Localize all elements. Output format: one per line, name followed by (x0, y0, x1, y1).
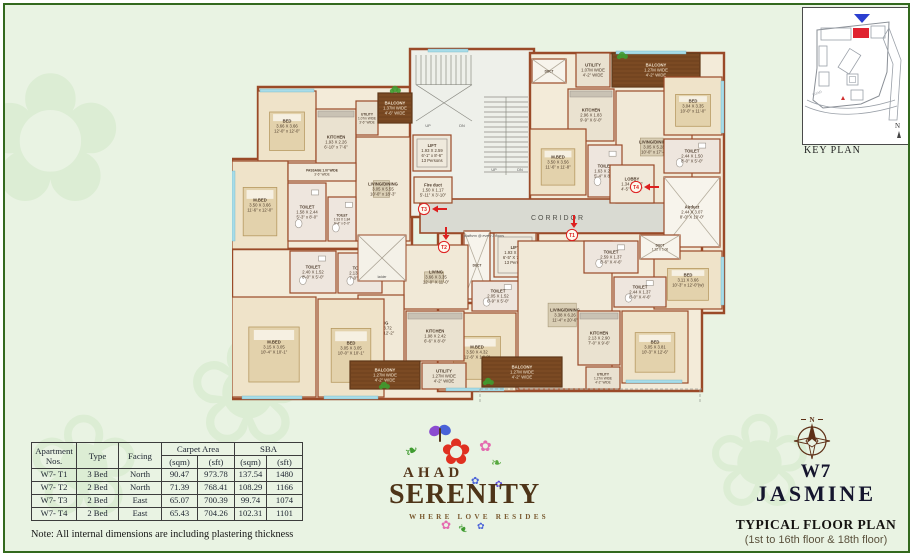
svg-text:12'-0" X 11'-0": 12'-0" X 11'-0" (423, 280, 450, 285)
toilet-t2-a: TOILET2.40 X 1.528'-0" X 5'-0" (290, 251, 336, 293)
bed-t4-a: BED3.04 X 3.3510'-0" x 11'-0" (664, 77, 722, 135)
platform-note: platform @ every 3 floors (463, 234, 504, 238)
window-sill (626, 380, 682, 383)
table-cell: 768.41 (198, 482, 235, 495)
toilet-core: TOILET2.05 X 1.526'-9" X 5'-0" (472, 281, 524, 311)
svg-text:1.22 X 1.06: 1.22 X 1.06 (652, 247, 669, 251)
plan-subtitle: (1st to 16th floor & 18th floor) (721, 534, 910, 546)
table-row: W7- T32 BedEast65.07700.3999.741074 (32, 494, 303, 507)
col-sba-sqm: (sqm) (235, 456, 267, 469)
north-arrow-icon (897, 131, 901, 138)
svg-text:DUCT: DUCT (545, 70, 554, 74)
svg-text:10'-3" x 12'-0"(w): 10'-3" x 12'-0"(w) (672, 283, 704, 288)
svg-text:10'-4" X 10'-1": 10'-4" X 10'-1" (261, 350, 288, 355)
flower-blue-icon: ✿ (477, 523, 485, 532)
plastering-note: Note: All internal dimensions are includ… (31, 529, 293, 540)
table-cell: 65.07 (162, 494, 198, 507)
floral-watermark: ✿ (3, 35, 126, 244)
svg-text:T1: T1 (569, 233, 575, 239)
corridor-label: CORRIDOR (531, 215, 585, 222)
table-cell: 1101 (267, 507, 303, 520)
utility-t4: UTILITY1.07M WIDE4'-2" WIDE (576, 53, 610, 87)
logo-tagline: WHERE LOVE RESIDES (409, 513, 549, 521)
col-type: Type (77, 443, 119, 469)
col-sba: SBA (235, 443, 303, 456)
plan-title-block: TYPICAL FLOOR PLAN (1st to 16th floor & … (721, 517, 910, 546)
svg-text:11'-6" x 12'-0": 11'-6" x 12'-0" (247, 208, 273, 213)
table-cell: 1480 (267, 469, 303, 482)
svg-text:T4: T4 (633, 185, 639, 191)
tower-title: W7 JASMINE (731, 461, 901, 507)
window-sill (428, 49, 468, 52)
passage-t3: PASSAGE 1.07 WIDE3'-6" WIDE (288, 163, 356, 181)
utility-t1: UTILITY1.27m WIDE4'-2" WIDE (586, 367, 620, 389)
mbed-t4: M.BED3.50 X 3.5611'-6" x 11'-8" (530, 129, 586, 195)
table-row: W7- T42 BedEast65.43704.26102.311101 (32, 507, 303, 520)
table-cell: W7- T4 (32, 507, 77, 520)
svg-text:6'-9" X 5'-0": 6'-9" X 5'-0" (487, 299, 509, 304)
dn-label-2: DN (517, 168, 523, 172)
tower-name: JASMINE (731, 481, 901, 507)
plan-title: TYPICAL FLOOR PLAN (721, 517, 910, 533)
mbed-t2: M.BED3.15 X 3.0510'-4" X 10'-1" (232, 297, 316, 397)
toilet-t1-b: TOILET2.44 X 1.378'-0" X 4'-6" (614, 277, 666, 307)
up-label-1: UP (425, 124, 431, 128)
lift-1: LIFT1.93 X 2.596'-1" x 8'-6"13 Persons (413, 135, 451, 171)
window-sill (324, 396, 378, 399)
window-sill (446, 388, 504, 391)
ahad-serenity-logo: ✿ ✿ ❧ ❧ ✿ ✿ ✿ ❧ ✿ AHAD SERENITY WHERE LO… (383, 421, 583, 553)
svg-text:10'-0" X 10'-1": 10'-0" X 10'-1" (338, 351, 365, 356)
table-cell: W7- T2 (32, 482, 77, 495)
table-cell: East (119, 507, 162, 520)
col-facing: Facing (119, 443, 162, 469)
table-cell: 108.29 (235, 482, 267, 495)
table-cell: 1166 (267, 482, 303, 495)
svg-text:10'-0" x 11'-0": 10'-0" x 11'-0" (680, 109, 706, 114)
svg-text:5'-11" X 3'-10": 5'-11" X 3'-10" (420, 193, 447, 198)
leaf-sprig-icon: ❧ (454, 521, 471, 538)
col-carpet-sqm: (sqm) (162, 456, 198, 469)
table-cell: 704.26 (198, 507, 235, 520)
table-cell: 2 Bed (77, 494, 119, 507)
ladder-label: ladder (378, 275, 388, 279)
logo-serenity: SERENITY (389, 479, 540, 511)
col-carpet-area: Carpet Area (162, 443, 235, 456)
table-cell: 3 Bed (77, 469, 119, 482)
svg-text:8'-0" X 10'-0": 8'-0" X 10'-0" (680, 215, 705, 220)
highlighted-tower (853, 28, 869, 38)
col-sba-sft: (sft) (267, 456, 303, 469)
svg-text:4'-2" WIDE: 4'-2" WIDE (375, 378, 396, 383)
toilet-t1-a: TOILET2.59 X 1.378'-6" X 4'-6" (584, 241, 638, 273)
svg-text:T2: T2 (441, 245, 447, 251)
svg-text:4'-2" WIDE: 4'-2" WIDE (434, 379, 455, 384)
svg-text:11'-4" x 20'-6": 11'-4" x 20'-6" (552, 318, 578, 323)
compass-icon: N (784, 413, 840, 463)
duct-t1: DUCT1.22 X 1.06 (640, 235, 680, 259)
window-sill (721, 257, 724, 305)
north-label: N (895, 122, 900, 130)
table-cell: W7- T3 (32, 494, 77, 507)
up-label-2: UP (491, 168, 497, 172)
table-cell: 2 Bed (77, 482, 119, 495)
window-sill (232, 171, 235, 241)
table-cell: 65.43 (162, 507, 198, 520)
table-cell: 1074 (267, 494, 303, 507)
kitchen-t2: KITCHEN1.98 X 2.426'-6" X 8'-0" (406, 311, 464, 361)
bed-t3: BED3.66 X 3.6612'-0" x 12'-0" (258, 91, 316, 161)
area-table: Apartment Nos. Type Facing Carpet Area S… (31, 442, 303, 521)
road-label: ROAD (812, 89, 823, 97)
fire-duct: Fire duct1.50 X 1.175'-11" X 3'-10" (414, 177, 452, 203)
table-cell: 99.74 (235, 494, 267, 507)
key-plan-title: KEY PLAN (804, 145, 861, 156)
table-cell: 102.31 (235, 507, 267, 520)
window-sill (242, 396, 302, 399)
key-plan-map: ROAD N (803, 8, 909, 144)
floor-plan: CORRIDORBED3.66 X 3.6612'-0" x 12'-0"M.B… (232, 45, 728, 417)
svg-text:12'-0" x 12'-0": 12'-0" x 12'-0" (274, 129, 300, 134)
utility-t2: UTILITY1.27M WIDE4'-2" WIDE (422, 363, 466, 389)
table-row: W7- T13 BedNorth90.47973.78137.541480 (32, 469, 303, 482)
svg-text:4'-2" WIDE: 4'-2" WIDE (583, 73, 604, 78)
toilet-t3-b: TOILET1.93 X 1.846'-4" x 6'-0" (328, 197, 356, 241)
table-cell: 71.39 (162, 482, 198, 495)
svg-text:13 Persons: 13 Persons (421, 158, 442, 163)
svg-text:6'-10" x 7'-6": 6'-10" x 7'-6" (324, 145, 348, 150)
table-cell: North (119, 469, 162, 482)
brochure-page: ✿ ❀ ✿ ❀ ❀ CORRIDORBED3.66 X 3.6612'-0" x… (0, 0, 913, 556)
key-plan: ROAD N KEY PLAN (802, 7, 910, 157)
svg-text:8'-0" X 5'-0": 8'-0" X 5'-0" (302, 275, 324, 280)
location-marker (854, 14, 870, 23)
svg-text:8'-6" X 4'-6": 8'-6" X 4'-6" (600, 260, 622, 265)
table-cell: 2 Bed (77, 507, 119, 520)
utility-t3: UTILITY1.07m WIDE3'-6" WIDE (356, 101, 378, 135)
balcony-t3: BALCONY1.37M WIDE4'-6" WIDE (378, 93, 412, 123)
bed-t1: BED3.05 X 3.8110'-3" X 12'-6" (622, 311, 688, 383)
living-t2: LIVING3.66 X 3.3512'-0" X 11'-0" (404, 245, 468, 309)
col-carpet-sft: (sft) (198, 456, 235, 469)
mbed-t3: M.BED3.50 X 3.6611'-6" x 12'-0" (232, 161, 288, 249)
table-cell: W7- T1 (32, 469, 77, 482)
svg-text:N: N (809, 416, 814, 424)
balcony-t1: BALCONY1.27M WIDE4'-2" WIDE (482, 357, 562, 387)
svg-text:7'-0" X 9'-6": 7'-0" X 9'-6" (588, 341, 610, 346)
window-sill (616, 51, 686, 54)
table-cell: North (119, 482, 162, 495)
svg-text:9'-9" X 6'-0": 9'-9" X 6'-0" (580, 118, 602, 123)
duct-t4-top: DUCT (532, 59, 566, 83)
svg-text:T3: T3 (421, 207, 427, 213)
svg-text:11'-6" x 11'-8": 11'-6" x 11'-8" (545, 165, 571, 170)
page-canvas: ✿ ❀ ✿ ❀ ❀ CORRIDORBED3.66 X 3.6612'-0" x… (3, 3, 910, 553)
toilet-t4-b: TOILET2.44 X 1.508'-0" X 5'-0" (664, 139, 720, 173)
svg-text:3'-6" WIDE: 3'-6" WIDE (359, 120, 375, 124)
svg-text:3'-6" WIDE: 3'-6" WIDE (314, 172, 330, 176)
window-sill (260, 89, 314, 92)
col-apartment: Apartment Nos. (32, 443, 77, 469)
table-row: W7- T22 BedNorth71.39768.41108.291166 (32, 482, 303, 495)
tower-code: W7 (731, 461, 901, 483)
svg-text:4'-6" WIDE: 4'-6" WIDE (385, 111, 406, 116)
toilet-t3-a: TOILET1.58 X 2.445'-3" x 8'-0" (288, 183, 326, 241)
dn-label-1: DN (459, 124, 465, 128)
svg-text:6'-4" x 6'-0": 6'-4" x 6'-0" (334, 221, 350, 225)
living-dining-t3: LIVING/DINING3.05 X 5.5510'-0" x 18'-3" (356, 137, 410, 241)
svg-text:4'-2" WIDE: 4'-2" WIDE (595, 380, 611, 384)
table-cell: 973.78 (198, 469, 235, 482)
svg-text:4'-2" WIDE: 4'-2" WIDE (512, 375, 533, 380)
leaf-sprig-icon: ❧ (402, 441, 422, 462)
table-cell: 137.54 (235, 469, 267, 482)
svg-text:10'-0" x 18'-3": 10'-0" x 18'-3" (370, 192, 396, 197)
svg-text:5'-3" x 8'-0": 5'-3" x 8'-0" (296, 215, 318, 220)
svg-text:4'-2" WIDE: 4'-2" WIDE (646, 73, 667, 78)
kitchen-t1: KITCHEN2.13 X 2.907'-0" X 9'-6" (578, 311, 620, 365)
key-plan-box: ROAD N (802, 7, 910, 145)
svg-text:8'-0" X 5'-0": 8'-0" X 5'-0" (681, 159, 703, 164)
leaf-sprig-icon: ❧ (491, 457, 502, 470)
table-cell: East (119, 494, 162, 507)
flower-pink-icon: ✿ (479, 439, 492, 454)
svg-text:DUCT: DUCT (473, 264, 482, 268)
svg-text:8'-0" X 4'-6": 8'-0" X 4'-6" (629, 295, 651, 300)
svg-text:6'-6" X 8'-0": 6'-6" X 8'-0" (424, 339, 446, 344)
window-sill (721, 81, 724, 133)
table-cell: 90.47 (162, 469, 198, 482)
svg-text:10'-3" X 12'-6": 10'-3" X 12'-6" (642, 350, 669, 355)
table-cell: 700.39 (198, 494, 235, 507)
